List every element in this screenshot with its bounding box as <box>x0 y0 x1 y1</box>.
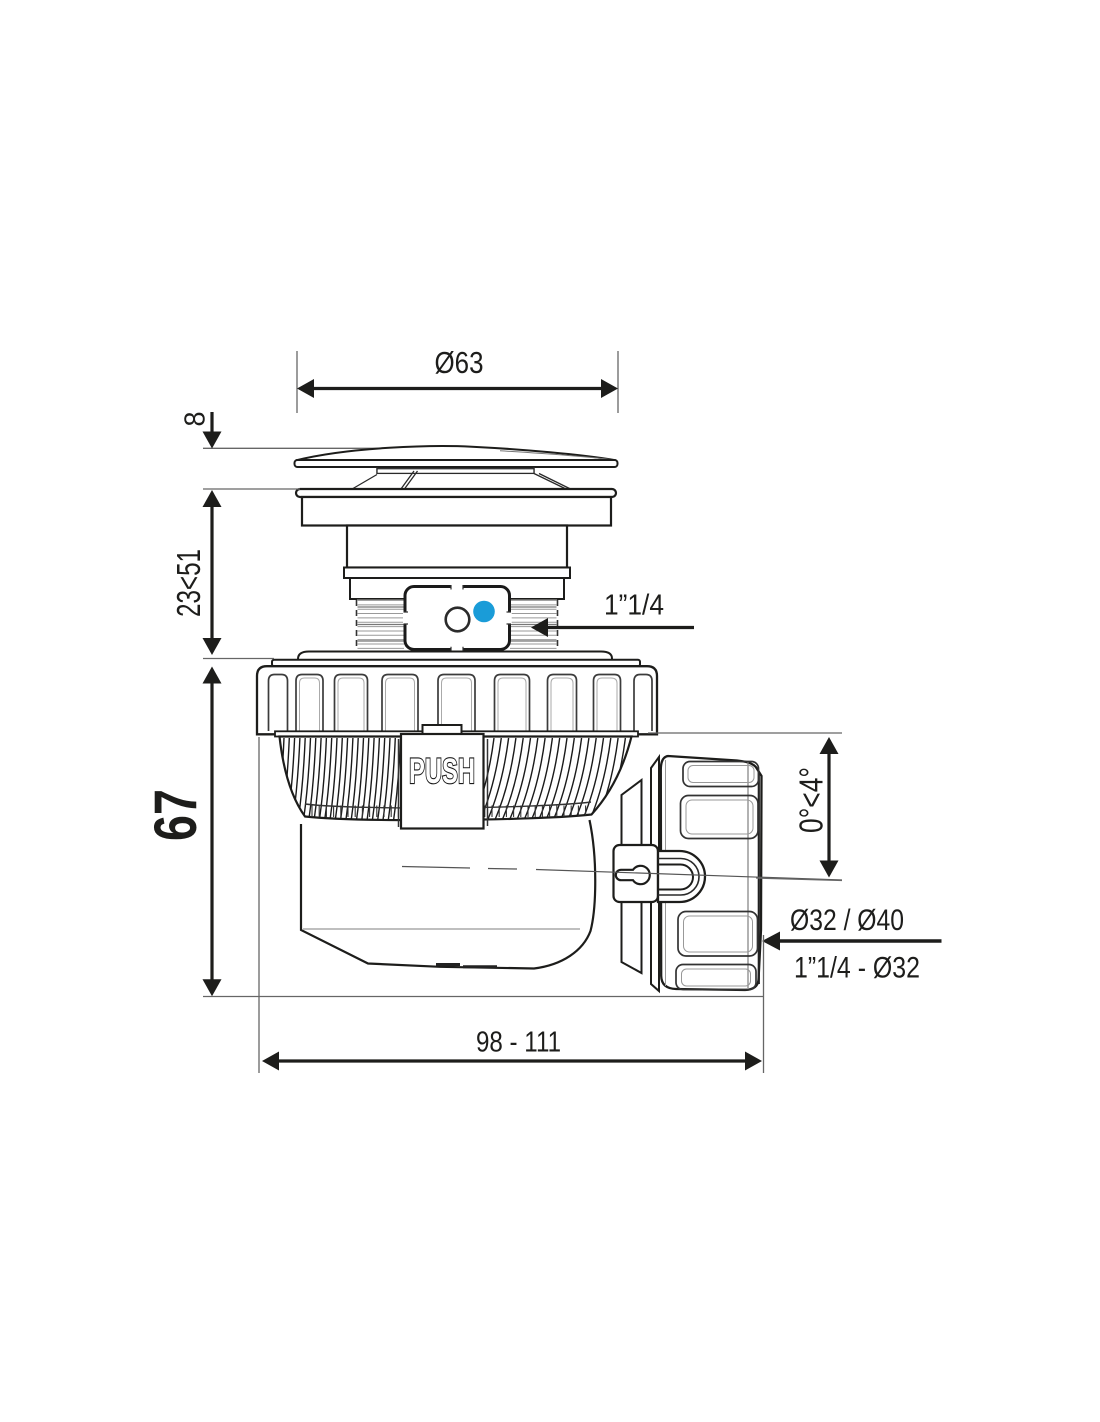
svg-text:1”1/4 - Ø32: 1”1/4 - Ø32 <box>794 952 920 985</box>
svg-text:23<51: 23<51 <box>170 549 207 617</box>
svg-text:0°<4°: 0°<4° <box>792 767 829 833</box>
svg-text:98 - 111: 98 - 111 <box>476 1027 561 1059</box>
svg-text:Ø32 / Ø40: Ø32 / Ø40 <box>790 904 904 937</box>
svg-text:67: 67 <box>142 789 209 841</box>
svg-text:8: 8 <box>180 412 212 427</box>
svg-text:1”1/4: 1”1/4 <box>604 590 664 622</box>
svg-text:Ø63: Ø63 <box>435 345 484 380</box>
svg-text:PUSH: PUSH <box>409 753 475 792</box>
